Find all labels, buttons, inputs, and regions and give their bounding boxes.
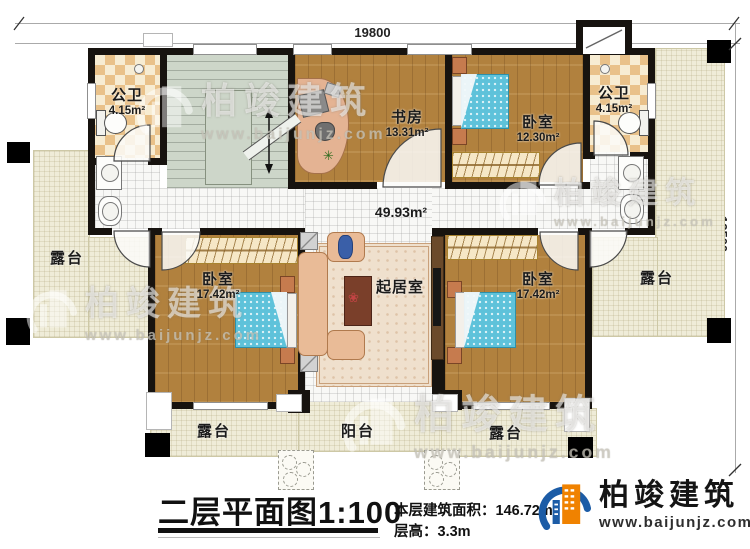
wall-segment xyxy=(295,182,377,189)
wardrobe-icon xyxy=(447,235,538,260)
tv-icon xyxy=(433,268,441,326)
column-pillar xyxy=(568,437,593,458)
window xyxy=(193,402,268,410)
terrace-left-label: 露台 xyxy=(50,247,84,268)
vestibule-interior xyxy=(583,27,625,54)
room-label-bedroom-left: 卧室 17.42m² xyxy=(173,272,263,302)
wall-segment xyxy=(288,48,295,189)
person-icon xyxy=(338,235,353,259)
wall-segment xyxy=(200,228,305,235)
room-label-bedroom-right: 卧室 17.42m² xyxy=(493,272,583,302)
washing-machine-icon xyxy=(623,164,641,182)
plan-title: 二层平面图1:100 xyxy=(158,487,402,532)
nightstand-icon xyxy=(280,347,295,364)
office-chair-icon xyxy=(315,122,335,141)
room-label-bathroom-left: 公卫 4.15m² xyxy=(95,88,159,118)
terrace-left-floor xyxy=(88,237,150,338)
room-label-study: 书房 13.31m² xyxy=(368,110,446,140)
wall-segment xyxy=(445,48,452,189)
planter-icon xyxy=(283,472,298,487)
window xyxy=(193,44,257,55)
flowers-icon: ❀ xyxy=(348,290,359,306)
room-label-bathroom-right: 公卫 4.15m² xyxy=(583,86,645,116)
wall-segment xyxy=(438,228,538,235)
floor-area-text: 本层建筑面积：146.72m² xyxy=(394,501,558,522)
terrace-left-floor xyxy=(33,150,90,338)
rug-icon xyxy=(316,243,432,387)
planter-icon xyxy=(282,455,297,470)
sink-icon xyxy=(102,202,119,221)
plan-title-text: 二层平面图 xyxy=(158,495,318,530)
side-table-icon xyxy=(300,232,318,250)
planter-icon xyxy=(428,455,443,470)
window xyxy=(293,44,332,55)
room-label-bedroom-top: 卧室 12.30m² xyxy=(493,115,583,145)
sink-icon xyxy=(624,200,641,219)
terrace-bottom-left-label: 露台 xyxy=(197,420,231,441)
terrace-bottom-right-label: 露台 xyxy=(489,422,523,443)
wall-segment xyxy=(88,48,655,55)
nightstand-icon xyxy=(452,128,467,145)
plan-info: 本层建筑面积：146.72m² 层高：3.3m xyxy=(394,501,558,543)
pier-base xyxy=(432,394,458,412)
wall-segment xyxy=(88,48,95,235)
pier-base xyxy=(146,392,172,430)
window xyxy=(407,44,472,55)
wall-segment xyxy=(148,228,155,409)
plant-icon: ✳ xyxy=(323,148,334,164)
nightstand-icon xyxy=(452,57,467,74)
dimension-line-right xyxy=(735,23,736,473)
title-underline xyxy=(158,537,380,538)
wall-segment xyxy=(445,182,540,189)
armchair-icon xyxy=(327,330,365,360)
column-pillar xyxy=(145,433,170,457)
brand-logo: 柏竣建筑 www.baijunjz.com xyxy=(537,474,750,538)
wall-segment xyxy=(160,48,167,165)
terrace-right-label: 露台 xyxy=(640,267,674,288)
dimension-top-value: 19800 xyxy=(345,25,400,40)
pier-base xyxy=(276,394,302,412)
logo-url: www.baijunjz.com xyxy=(599,514,750,531)
vent-box xyxy=(143,33,173,47)
balcony-label: 阳台 xyxy=(341,420,375,441)
planter-icon xyxy=(429,472,444,487)
wall-segment xyxy=(625,228,655,235)
wall-segment xyxy=(583,152,595,159)
floor-height-text: 层高：3.3m xyxy=(394,522,558,543)
wardrobe-icon xyxy=(185,237,298,264)
planter-icon xyxy=(296,462,311,477)
pier-base xyxy=(564,398,590,432)
wall-segment xyxy=(148,158,167,165)
light-fixture-icon xyxy=(134,64,144,74)
nightstand-icon xyxy=(280,276,295,293)
side-table-icon xyxy=(300,354,318,372)
title-underline xyxy=(158,528,378,533)
terrace-right-floor xyxy=(655,48,725,337)
room-label-living: 起居室 xyxy=(366,280,434,297)
washing-machine-icon xyxy=(101,164,119,182)
floor-plan-sheet: 19800 12500 xyxy=(0,0,750,549)
light-fixture-icon xyxy=(600,64,610,74)
logo-name: 柏竣建筑 xyxy=(599,481,750,511)
nightstand-icon xyxy=(447,347,462,364)
stair-void xyxy=(205,90,252,185)
wall-segment xyxy=(585,228,592,409)
wall-segment xyxy=(432,228,445,236)
wall-segment xyxy=(648,48,655,235)
sofa-icon xyxy=(298,252,328,356)
wall-segment xyxy=(88,228,112,235)
column-pillar xyxy=(6,318,30,345)
wall-segment xyxy=(578,182,590,189)
planter-icon xyxy=(442,462,457,477)
hall-area-label: 49.93m² xyxy=(362,205,440,221)
column-pillar xyxy=(707,40,731,63)
wardrobe-icon xyxy=(452,152,540,178)
plan-scale: 1:100 xyxy=(318,495,402,530)
logo-glyph-icon xyxy=(537,474,591,538)
window xyxy=(473,402,550,410)
column-pillar xyxy=(707,318,731,343)
column-pillar xyxy=(7,142,30,163)
bed-icon xyxy=(287,293,297,348)
